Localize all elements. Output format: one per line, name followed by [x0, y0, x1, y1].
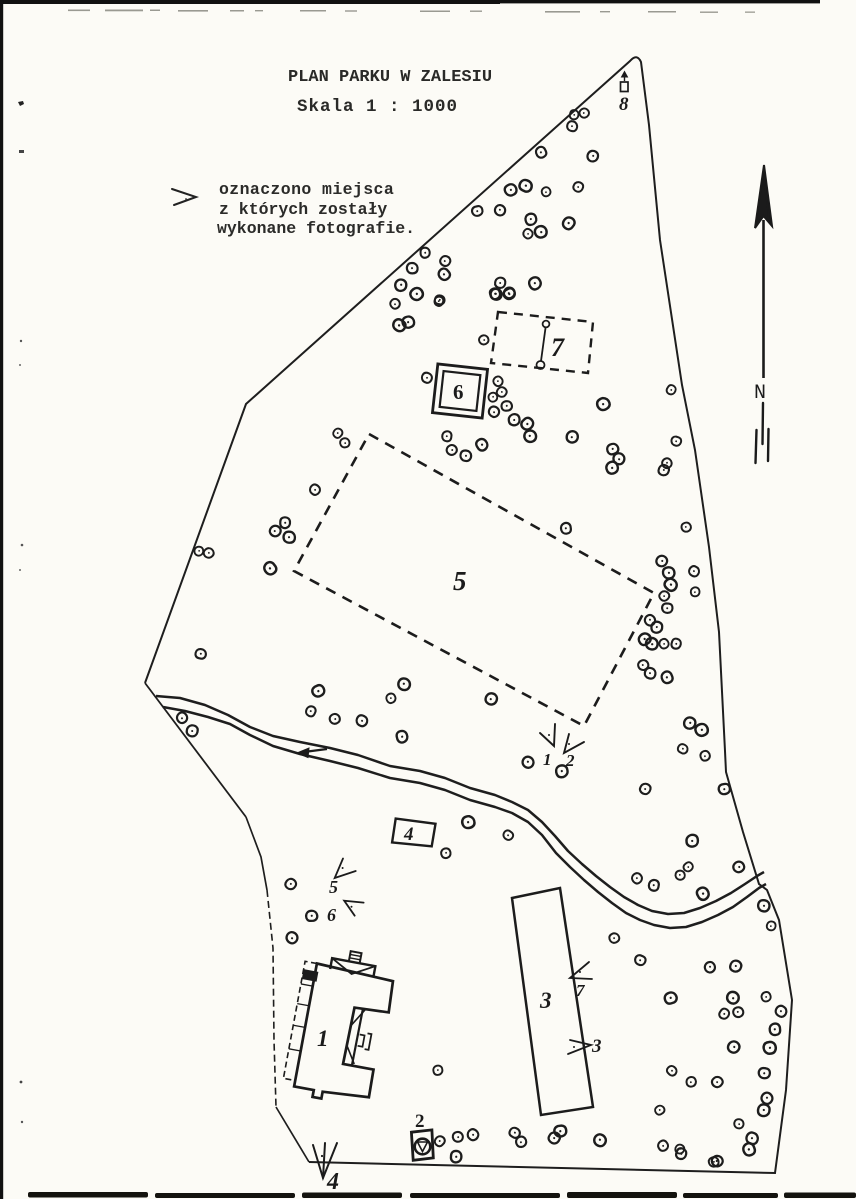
- svg-text:7: 7: [551, 333, 565, 362]
- svg-text:6: 6: [453, 380, 464, 404]
- svg-text:4: 4: [326, 1169, 339, 1195]
- svg-text:1: 1: [317, 1026, 329, 1051]
- svg-text:6: 6: [327, 905, 336, 925]
- svg-text:3: 3: [539, 988, 552, 1013]
- svg-text:5: 5: [329, 877, 338, 897]
- svg-text:8: 8: [619, 94, 629, 115]
- svg-text:wykonane fotografie.: wykonane fotografie.: [217, 219, 415, 238]
- svg-text:oznaczono miejsca: oznaczono miejsca: [219, 180, 394, 199]
- svg-text:PLAN PARKU W ZALESIU: PLAN PARKU W ZALESIU: [288, 68, 492, 87]
- svg-text:4: 4: [403, 824, 414, 845]
- svg-text:N: N: [754, 382, 766, 405]
- svg-text:Skala 1 : 1000: Skala 1 : 1000: [297, 97, 458, 117]
- svg-text:5: 5: [453, 566, 467, 596]
- svg-text:z których zostały: z których zostały: [219, 200, 387, 219]
- svg-text:1: 1: [543, 750, 552, 769]
- svg-text:2: 2: [415, 1111, 425, 1132]
- svg-text:3: 3: [591, 1036, 602, 1057]
